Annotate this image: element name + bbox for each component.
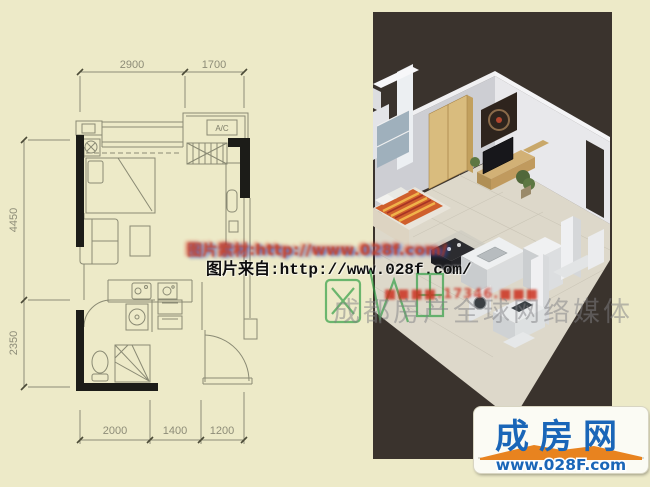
brand-logo-graphic: 成房网 www.028F.com: [474, 407, 648, 473]
ac-unit-label: A/C: [215, 124, 229, 133]
table-symbol: [130, 226, 150, 256]
logo-url-text: www.028F.com: [496, 456, 626, 473]
bed-symbol: [86, 158, 155, 213]
doorway-opening: [586, 140, 604, 218]
dim-left-lower: 2350: [8, 331, 20, 355]
render-3d: [373, 12, 612, 459]
dim-bottom-1: 2000: [103, 425, 127, 437]
logo-brand-text: 成房网: [495, 417, 627, 457]
real-estate-listing-image: 2900 1700 4450 2350 2000 1400 1200 A/C: [0, 0, 650, 487]
bath-door-arc: [84, 300, 111, 327]
dim-top-left: 2900: [120, 59, 144, 71]
watermark-green-logo-icon: [322, 258, 457, 343]
floor-plan-walls-thick: [76, 135, 250, 391]
floor-plan-walls-thin: [76, 113, 257, 384]
dim-top-right: 1700: [202, 59, 226, 71]
entry-door-arc: [205, 335, 249, 381]
stove-symbol: [158, 283, 177, 299]
dim-left-upper: 4450: [8, 208, 20, 232]
brand-logo: 成房网 www.028F.com: [474, 407, 648, 473]
dim-bottom-2: 1400: [163, 425, 187, 437]
toilet-symbol: [92, 351, 108, 373]
dim-bottom-3: 1200: [210, 425, 234, 437]
